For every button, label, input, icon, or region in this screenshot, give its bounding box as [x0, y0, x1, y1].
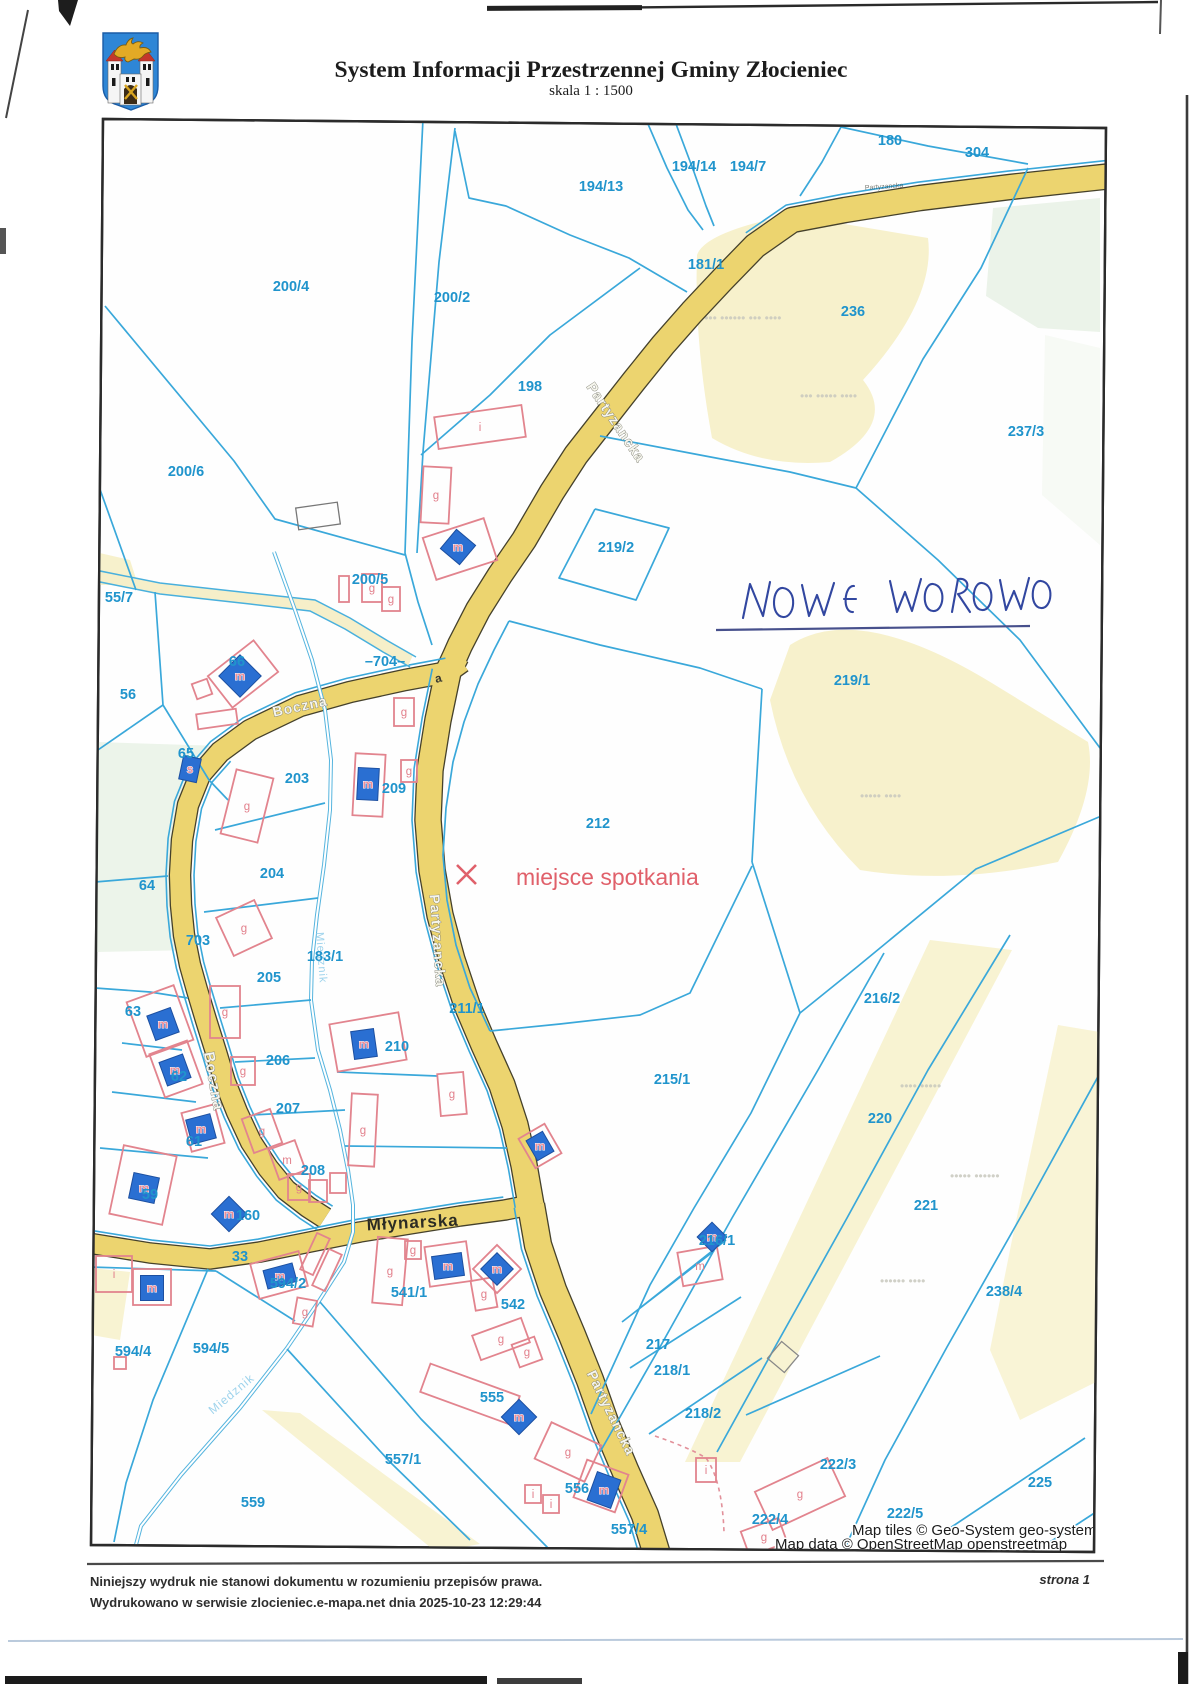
- svg-text:304: 304: [965, 145, 989, 161]
- svg-text:194/14: 194/14: [672, 159, 716, 175]
- svg-text:g: g: [761, 1532, 767, 1544]
- svg-text:183/1: 183/1: [307, 949, 343, 965]
- svg-text:i: i: [532, 1489, 535, 1501]
- svg-text:219/2: 219/2: [598, 540, 634, 556]
- svg-text:Wydrukowano w serwisie zlocien: Wydrukowano w serwisie zlocieniec.e-mapa…: [90, 1595, 542, 1610]
- svg-text:g: g: [296, 1182, 302, 1194]
- svg-text:•••• •••••• ••• ••••: •••• •••••• ••• ••••: [700, 311, 781, 325]
- svg-text:•••••• ••••: •••••• ••••: [880, 1274, 925, 1288]
- svg-text:i: i: [479, 422, 482, 434]
- svg-text:209: 209: [382, 781, 406, 797]
- svg-text:200/5: 200/5: [352, 572, 388, 588]
- svg-text:56: 56: [120, 687, 136, 703]
- svg-text:64: 64: [139, 878, 155, 894]
- svg-text:g: g: [259, 1126, 265, 1138]
- svg-text:221: 221: [914, 1198, 938, 1214]
- svg-text:703: 703: [186, 933, 210, 949]
- svg-text:216/1: 216/1: [699, 1233, 735, 1249]
- svg-text:222/4: 222/4: [752, 1512, 788, 1528]
- svg-text:m: m: [695, 1261, 705, 1273]
- svg-text:m: m: [363, 777, 374, 791]
- svg-text:g: g: [387, 1266, 393, 1278]
- svg-text:g: g: [565, 1447, 571, 1459]
- svg-text:204: 204: [260, 866, 284, 882]
- svg-text:556: 556: [565, 1481, 589, 1497]
- svg-text:g: g: [241, 923, 247, 935]
- svg-text:m: m: [235, 669, 246, 683]
- svg-text:g: g: [449, 1089, 455, 1101]
- svg-text:215/1: 215/1: [654, 1072, 690, 1088]
- svg-text:••• ••••• ••••: ••• ••••• ••••: [800, 389, 857, 403]
- svg-text:m: m: [453, 540, 464, 554]
- svg-text:m: m: [359, 1037, 370, 1051]
- svg-text:594/5: 594/5: [193, 1341, 229, 1357]
- svg-text:216/2: 216/2: [864, 991, 900, 1007]
- svg-text:218/1: 218/1: [654, 1363, 690, 1379]
- svg-text:i: i: [113, 1269, 116, 1281]
- svg-text:220: 220: [868, 1111, 892, 1127]
- svg-text:g: g: [524, 1347, 530, 1359]
- svg-text:194/13: 194/13: [579, 179, 623, 195]
- svg-text:skala 1 : 1500: skala 1 : 1500: [549, 83, 633, 99]
- svg-text:212: 212: [586, 816, 610, 832]
- svg-text:181/1: 181/1: [688, 257, 724, 273]
- svg-text:198: 198: [518, 379, 542, 395]
- svg-text:203: 203: [285, 771, 309, 787]
- svg-text:217: 217: [646, 1337, 670, 1353]
- svg-text:200/4: 200/4: [273, 279, 309, 295]
- svg-text:207: 207: [276, 1101, 300, 1117]
- svg-text:m: m: [443, 1259, 454, 1273]
- svg-text:180: 180: [878, 133, 902, 149]
- svg-text:555: 555: [480, 1390, 504, 1406]
- svg-text:i: i: [550, 1499, 553, 1511]
- svg-text:g: g: [302, 1307, 308, 1319]
- svg-text:m: m: [535, 1139, 546, 1153]
- svg-text:g: g: [481, 1289, 487, 1301]
- svg-text:210: 210: [385, 1039, 409, 1055]
- svg-text:66: 66: [229, 654, 245, 670]
- svg-text:557/1: 557/1: [385, 1452, 421, 1468]
- svg-text:System Informacji Przestrzenne: System Informacji Przestrzennej Gminy Zł…: [335, 57, 848, 83]
- svg-text:208: 208: [301, 1163, 325, 1179]
- svg-text:g: g: [401, 707, 407, 719]
- svg-text:237/3: 237/3: [1008, 424, 1044, 440]
- svg-text:542: 542: [501, 1297, 525, 1313]
- svg-text:g: g: [388, 594, 394, 606]
- svg-text:strona 1: strona 1: [1039, 1572, 1090, 1587]
- svg-text:218/2: 218/2: [685, 1406, 721, 1422]
- svg-text:559: 559: [241, 1495, 265, 1511]
- svg-text:62: 62: [171, 1069, 187, 1085]
- svg-text:m: m: [492, 1262, 503, 1276]
- svg-text:222/5: 222/5: [887, 1506, 923, 1522]
- svg-text:594/4: 594/4: [115, 1344, 151, 1360]
- svg-text:i: i: [705, 1465, 708, 1477]
- svg-text:194/7: 194/7: [730, 159, 766, 175]
- svg-text:m: m: [224, 1207, 235, 1221]
- svg-text:g: g: [240, 1066, 246, 1078]
- svg-text:g: g: [410, 1245, 416, 1257]
- svg-text:s: s: [187, 762, 194, 776]
- svg-text:211/1: 211/1: [449, 1001, 485, 1017]
- svg-text:•••• •••••: •••• •••••: [900, 1079, 941, 1093]
- svg-text:g: g: [360, 1125, 366, 1137]
- svg-text:200/6: 200/6: [168, 464, 204, 480]
- svg-text:541/1: 541/1: [391, 1285, 427, 1301]
- svg-text:g: g: [406, 766, 412, 778]
- svg-text:••••• ••••••: ••••• ••••••: [950, 1169, 1000, 1183]
- svg-text:m: m: [514, 1410, 525, 1424]
- svg-text:g: g: [222, 1007, 228, 1019]
- svg-text:m: m: [599, 1483, 610, 1497]
- svg-text:g: g: [797, 1489, 803, 1501]
- svg-text:160: 160: [236, 1208, 260, 1224]
- svg-text:33: 33: [232, 1249, 248, 1265]
- svg-text:m: m: [282, 1155, 292, 1167]
- svg-text:59: 59: [142, 1187, 158, 1203]
- svg-text:206: 206: [266, 1053, 290, 1069]
- svg-text:205: 205: [257, 970, 281, 986]
- svg-text:594/2: 594/2: [270, 1276, 306, 1292]
- svg-text:61: 61: [186, 1134, 202, 1150]
- svg-text:65: 65: [178, 746, 194, 762]
- svg-text:m: m: [147, 1281, 158, 1295]
- svg-text:225: 225: [1028, 1475, 1052, 1491]
- svg-text:Niniejszy wydruk nie stanowi d: Niniejszy wydruk nie stanowi dokumentu w…: [90, 1574, 542, 1589]
- svg-text:63: 63: [125, 1004, 141, 1020]
- svg-text:238/4: 238/4: [986, 1284, 1022, 1300]
- svg-text:miejsce spotkania: miejsce spotkania: [516, 864, 699, 890]
- svg-text:236: 236: [841, 304, 865, 320]
- svg-text:200/2: 200/2: [434, 290, 470, 306]
- svg-text:219/1: 219/1: [834, 673, 870, 689]
- svg-text:222/3: 222/3: [820, 1457, 856, 1473]
- svg-text:m: m: [158, 1017, 169, 1031]
- svg-text:–704–: –704–: [365, 654, 405, 670]
- svg-text:g: g: [433, 490, 439, 502]
- svg-text:••••• ••••: ••••• ••••: [860, 789, 901, 803]
- svg-text:55/7: 55/7: [105, 590, 133, 606]
- svg-text:g: g: [244, 801, 250, 813]
- svg-text:g: g: [498, 1334, 504, 1346]
- svg-text:557/4: 557/4: [611, 1522, 647, 1538]
